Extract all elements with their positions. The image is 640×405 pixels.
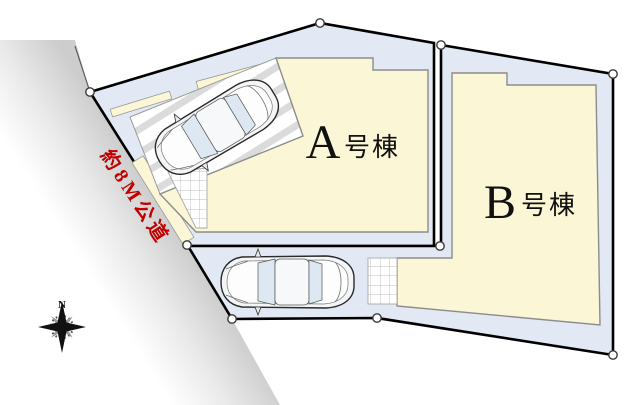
- boundary-vertex: [437, 41, 445, 49]
- site-plan: A 号棟 B 号棟 約8M公道 N: [0, 0, 640, 405]
- building-a-letter: A: [306, 116, 341, 169]
- boundary-vertex: [228, 315, 236, 323]
- boundary-vertex: [436, 242, 444, 250]
- building-b-suffix: 号棟: [521, 191, 577, 220]
- building-a-suffix: 号棟: [344, 133, 400, 162]
- site-plan-canvas: A 号棟 B 号棟 約8M公道 N: [0, 0, 640, 405]
- north-label: N: [58, 299, 66, 311]
- building-b-letter: B: [484, 176, 516, 229]
- boundary-vertex: [373, 314, 381, 322]
- boundary-vertex: [316, 19, 324, 27]
- boundary-vertex: [609, 351, 617, 359]
- boundary-vertex: [86, 88, 94, 96]
- boundary-vertex: [183, 241, 191, 249]
- boundary-vertex: [609, 70, 617, 78]
- car-icon: [221, 249, 354, 315]
- tile-grid-b: [368, 258, 397, 304]
